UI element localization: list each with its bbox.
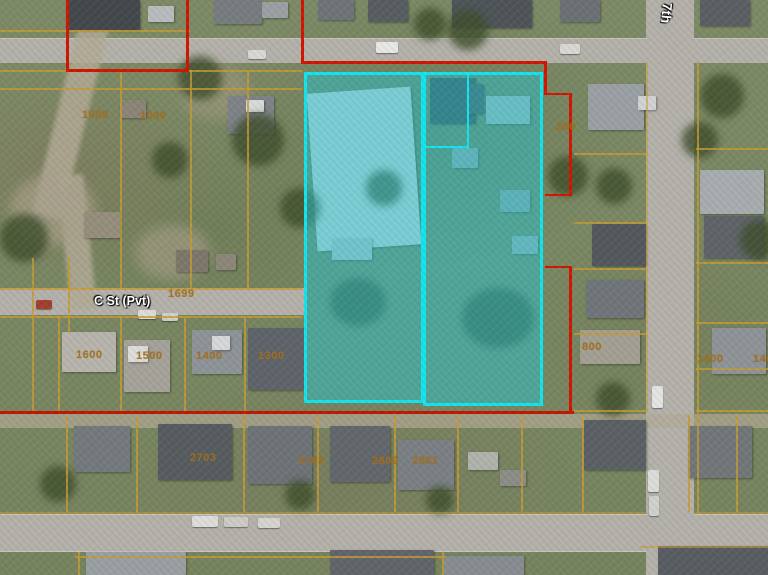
tree — [0, 214, 48, 262]
building — [248, 426, 312, 484]
parcel-line — [247, 70, 249, 288]
building — [586, 280, 644, 318]
building — [560, 0, 600, 22]
car — [224, 517, 248, 527]
tree — [700, 74, 744, 118]
building — [700, 0, 750, 26]
car — [649, 496, 659, 516]
parcel-line — [574, 222, 646, 224]
parcel-line — [0, 70, 67, 72]
parcel-line — [0, 288, 302, 290]
parcel-line — [442, 552, 444, 575]
building — [248, 328, 304, 390]
building — [212, 336, 230, 350]
parcel-line — [574, 410, 646, 412]
parcel-line — [243, 415, 245, 512]
parcel-line — [190, 70, 192, 288]
building — [74, 426, 130, 472]
building — [444, 556, 524, 575]
parcel-line — [394, 415, 396, 512]
boundary-line — [301, 61, 547, 64]
parcel-line — [244, 316, 246, 413]
building — [330, 550, 434, 575]
parcel-line — [696, 322, 768, 324]
tree — [448, 10, 488, 50]
car — [652, 386, 663, 408]
parcel-line — [640, 546, 768, 548]
parcel-line — [68, 258, 70, 333]
parcel-line — [32, 258, 34, 413]
tree — [682, 122, 718, 158]
parcel-line — [694, 512, 768, 514]
parcel-line — [0, 30, 190, 32]
parcel-number-label: 200 — [556, 121, 576, 133]
parcel-line — [184, 316, 186, 413]
parcel-line — [688, 415, 690, 512]
boundary-line — [66, 0, 69, 72]
tree — [40, 466, 76, 502]
building — [592, 224, 646, 266]
parcel-line — [696, 410, 768, 412]
parcel-line — [66, 415, 68, 512]
aerial-map[interactable]: 1000100016991600150014001300200800140014… — [0, 0, 768, 575]
tree — [596, 168, 632, 204]
boundary-line — [569, 266, 572, 413]
building — [120, 100, 146, 118]
building — [700, 170, 764, 214]
selected-parcel-left[interactable] — [304, 72, 424, 403]
parcel-line — [188, 70, 302, 72]
selected-parcel-notch[interactable] — [423, 72, 469, 148]
boundary-line — [186, 0, 189, 72]
tree — [178, 56, 222, 100]
parcel-line — [696, 262, 768, 264]
car — [376, 42, 398, 53]
tree — [232, 114, 284, 166]
tree — [548, 156, 588, 196]
parcel-line — [58, 316, 60, 413]
tree — [285, 480, 315, 510]
building — [84, 212, 120, 238]
parcel-line — [136, 415, 138, 512]
building — [398, 440, 454, 490]
tree — [426, 486, 454, 514]
building — [330, 426, 390, 482]
tree — [414, 8, 446, 40]
parcel-line — [521, 415, 523, 512]
parcel-line — [0, 512, 645, 514]
parcel-line — [75, 556, 445, 558]
boundary-line — [569, 93, 572, 196]
parcel-line — [120, 70, 122, 288]
boundary-line — [545, 194, 572, 196]
parcel-line — [0, 316, 302, 318]
building — [318, 0, 354, 20]
building — [584, 420, 646, 470]
parcel-line — [457, 415, 459, 512]
building — [66, 0, 140, 30]
boundary-line — [0, 411, 574, 414]
building — [580, 330, 640, 364]
parcel-line — [696, 368, 768, 370]
tree — [152, 142, 188, 178]
boundary-line — [544, 61, 547, 95]
parcel-line — [120, 316, 122, 413]
parcel-line — [574, 268, 646, 270]
building — [214, 0, 262, 24]
parcel-line — [736, 415, 738, 512]
car — [248, 50, 266, 59]
boundary-line — [66, 69, 189, 72]
building — [128, 346, 148, 362]
boundary-line — [301, 0, 304, 64]
building — [262, 2, 288, 18]
parcel-line — [696, 148, 768, 150]
parcel-line — [317, 415, 319, 512]
parcel-line — [0, 88, 302, 90]
building — [658, 546, 768, 575]
car — [36, 300, 52, 309]
building — [62, 332, 116, 372]
parcel-line — [582, 415, 584, 512]
parcel-line — [697, 62, 699, 514]
building — [368, 0, 408, 22]
car — [258, 518, 280, 528]
building — [588, 84, 644, 130]
car — [560, 44, 580, 54]
parcel-line — [574, 153, 646, 155]
car — [192, 516, 218, 527]
boundary-line — [544, 93, 572, 95]
building — [176, 250, 208, 272]
parcel-line — [574, 333, 646, 335]
building — [148, 6, 174, 22]
building — [468, 452, 498, 470]
car — [648, 470, 659, 492]
parcel-line — [646, 62, 648, 413]
parcel-line — [78, 552, 80, 575]
building — [216, 254, 236, 270]
building — [158, 424, 232, 480]
boundary-line — [545, 266, 572, 268]
